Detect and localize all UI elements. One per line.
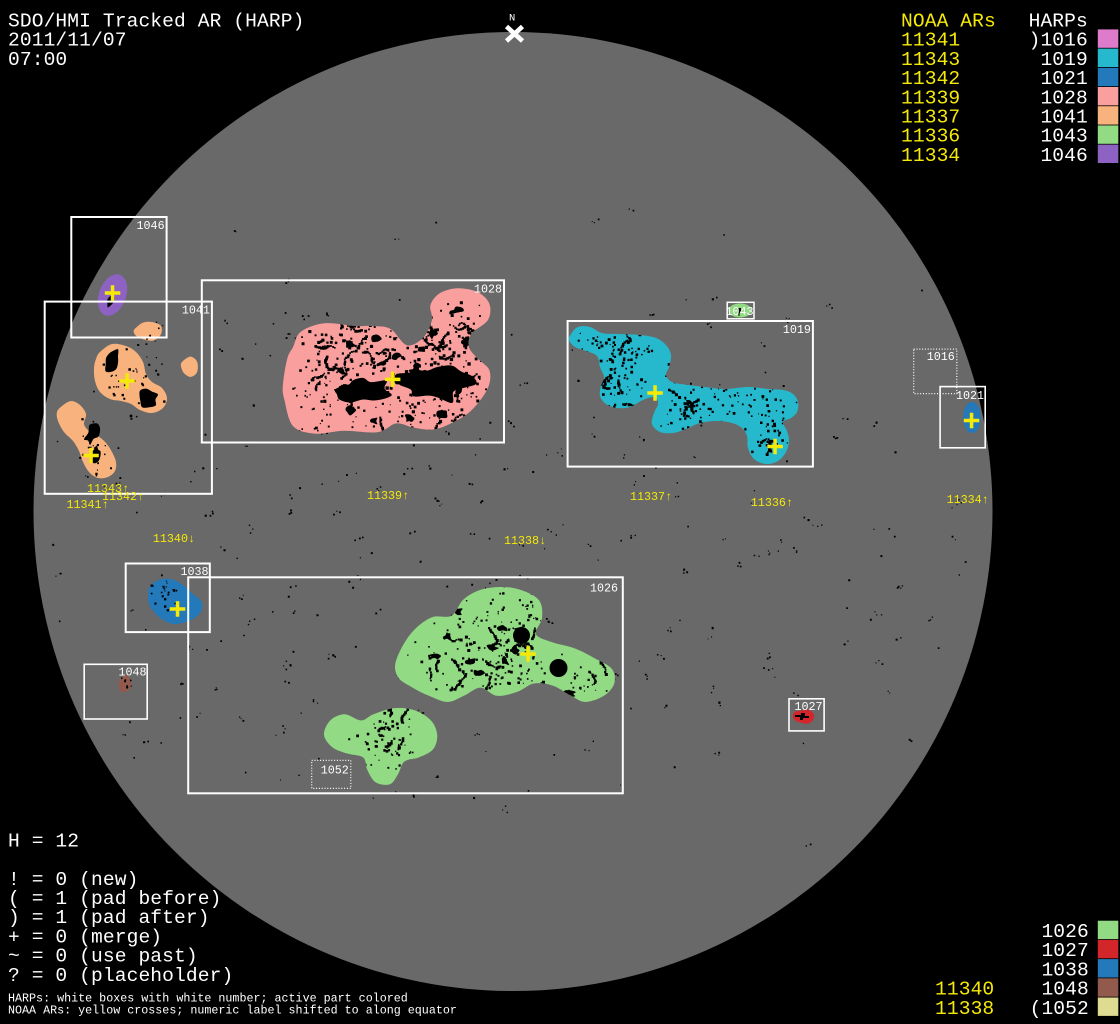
svg-text:11337↑: 11337↑ bbox=[630, 490, 672, 504]
svg-text:NOAA ARs: yellow crosses; nume: NOAA ARs: yellow crosses; numeric label … bbox=[8, 1004, 457, 1018]
svg-text:11341↑: 11341↑ bbox=[67, 498, 109, 512]
svg-text:11339↑: 11339↑ bbox=[367, 489, 409, 503]
svg-text:H = 12: H = 12 bbox=[8, 830, 79, 852]
svg-text:1028: 1028 bbox=[474, 282, 502, 296]
svg-text:07:00: 07:00 bbox=[8, 49, 67, 71]
svg-text:1048: 1048 bbox=[118, 666, 146, 680]
svg-text:11338↓: 11338↓ bbox=[504, 534, 546, 548]
svg-text:1046: 1046 bbox=[137, 219, 165, 233]
svg-text:1043: 1043 bbox=[725, 305, 753, 319]
svg-text:11340↓: 11340↓ bbox=[153, 532, 195, 546]
svg-text:? = 0 (placeholder): ? = 0 (placeholder) bbox=[8, 965, 233, 987]
svg-text:N: N bbox=[509, 13, 515, 25]
svg-text:1016: 1016 bbox=[927, 350, 955, 364]
svg-text:1052: 1052 bbox=[321, 763, 349, 777]
svg-text:1019: 1019 bbox=[783, 323, 811, 337]
svg-text:1026: 1026 bbox=[590, 582, 618, 596]
svg-text:(1052: (1052 bbox=[1030, 998, 1089, 1020]
svg-text:1041: 1041 bbox=[182, 304, 210, 318]
svg-text:11334↑: 11334↑ bbox=[947, 493, 989, 507]
svg-text:11338: 11338 bbox=[935, 998, 994, 1020]
svg-text:11334: 11334 bbox=[901, 145, 960, 167]
svg-text:1027: 1027 bbox=[794, 700, 822, 714]
svg-text:11336↑: 11336↑ bbox=[751, 496, 793, 510]
svg-text:1046: 1046 bbox=[1029, 145, 1088, 167]
svg-text:1021: 1021 bbox=[956, 389, 984, 403]
